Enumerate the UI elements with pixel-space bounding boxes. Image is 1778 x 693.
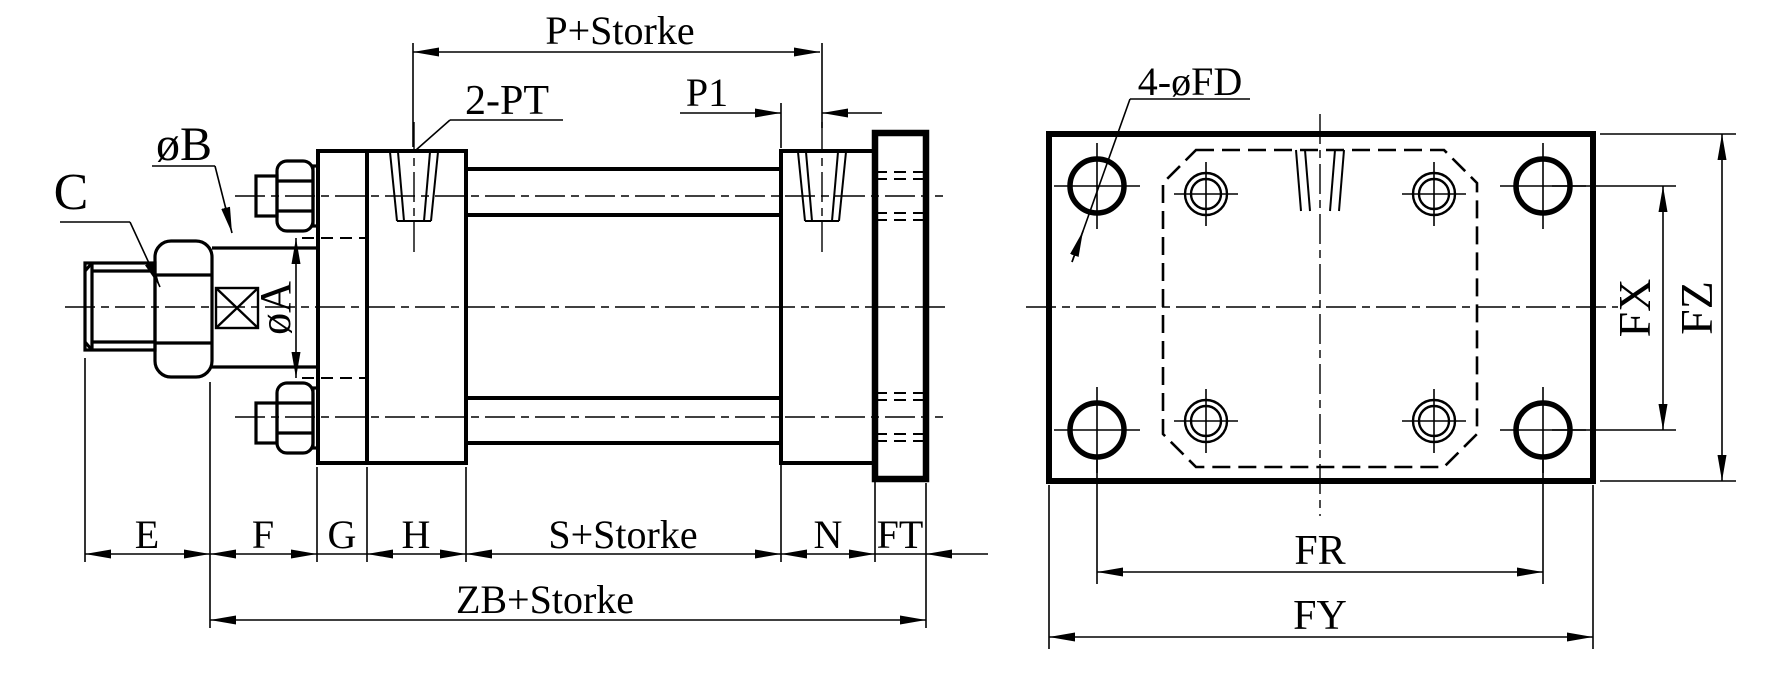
label-4-fd: 4-øFD: [1138, 59, 1242, 104]
front-port: [390, 122, 438, 252]
label-p1: P1: [686, 70, 728, 115]
label-fr: FR: [1294, 528, 1345, 574]
rear-flange: [875, 133, 926, 479]
label-e: E: [135, 512, 159, 557]
cylinder-side-view: P+Storke 2-PT P1 øB C øA E F G H S+Stork…: [54, 8, 988, 628]
end-view-dimensions: [1049, 99, 1736, 649]
flange-end-view: 4-øFD FX FZ FR FY: [1026, 59, 1736, 649]
label-h: H: [402, 512, 431, 557]
label-s-storke: S+Storke: [548, 512, 697, 557]
label-dia-b: øB: [156, 118, 212, 171]
label-n: N: [814, 512, 843, 557]
label-fz: FZ: [1671, 281, 1722, 335]
label-c: C: [54, 164, 89, 221]
label-2-pt: 2-PT: [465, 78, 549, 124]
label-g: G: [328, 512, 357, 557]
label-fy: FY: [1293, 593, 1347, 639]
cylinder-tube: [466, 169, 781, 443]
label-p-storke: P+Storke: [545, 8, 694, 53]
label-f: F: [252, 512, 274, 557]
technical-drawing: P+Storke 2-PT P1 øB C øA E F G H S+Stork…: [0, 0, 1778, 693]
label-dia-a: øA: [251, 281, 300, 335]
label-zb-storke: ZB+Storke: [456, 577, 634, 622]
label-fx: FX: [1609, 279, 1660, 338]
centerlines: [65, 196, 945, 417]
rod-nut: [155, 241, 212, 377]
rear-port: [798, 122, 846, 252]
label-ft: FT: [877, 512, 924, 557]
